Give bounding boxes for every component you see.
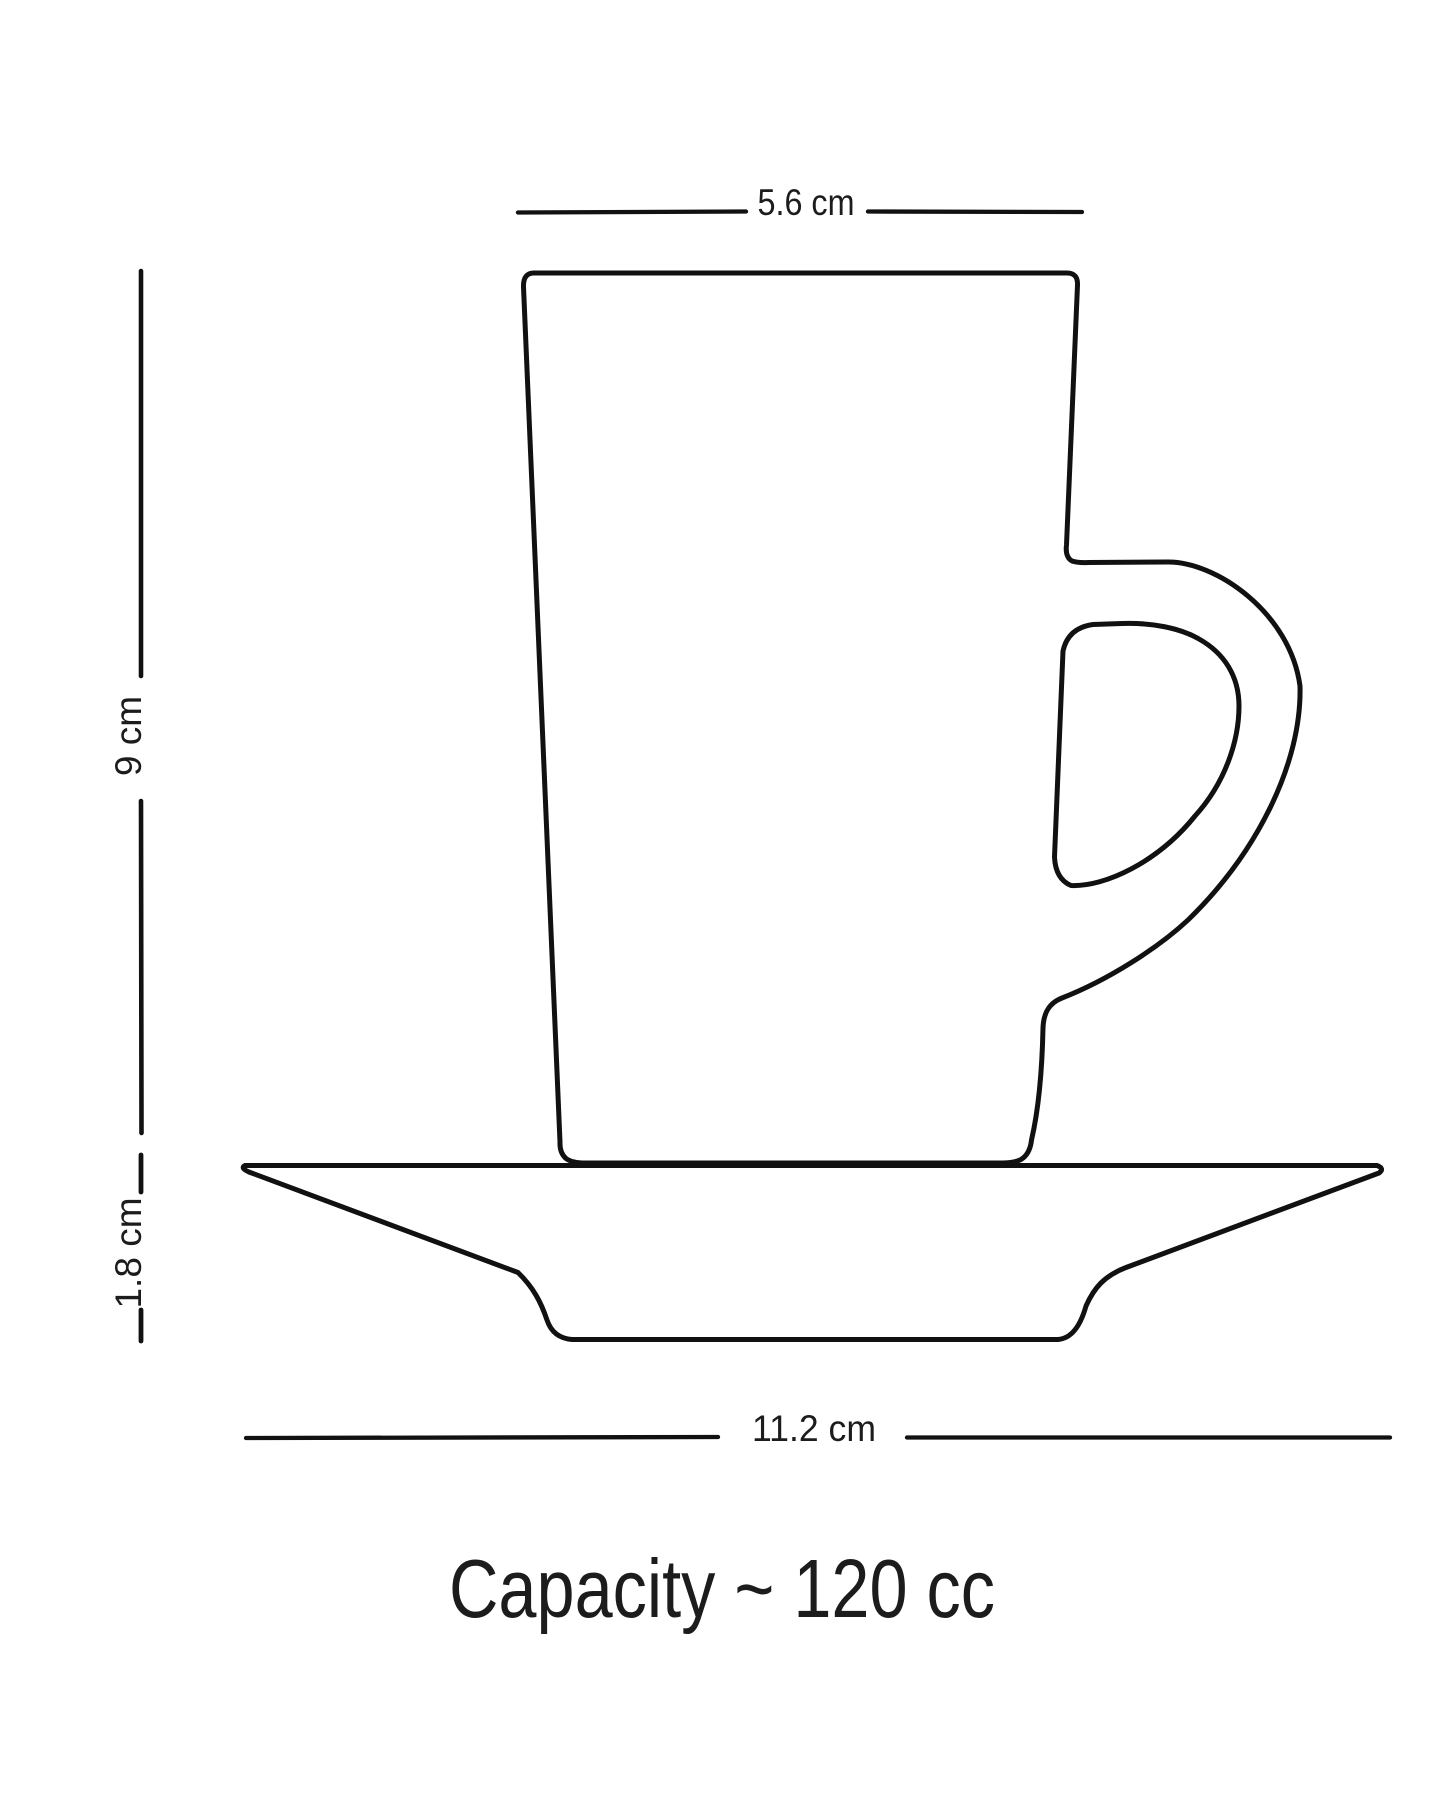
svg-text:1.8 cm: 1.8 cm [108, 1197, 149, 1308]
svg-text:9 cm: 9 cm [108, 696, 149, 776]
svg-text:5.6 cm: 5.6 cm [758, 182, 855, 223]
svg-text:Capacity ~ 120 cc: Capacity ~ 120 cc [449, 1542, 995, 1635]
svg-text:11.2 cm: 11.2 cm [752, 1408, 876, 1449]
